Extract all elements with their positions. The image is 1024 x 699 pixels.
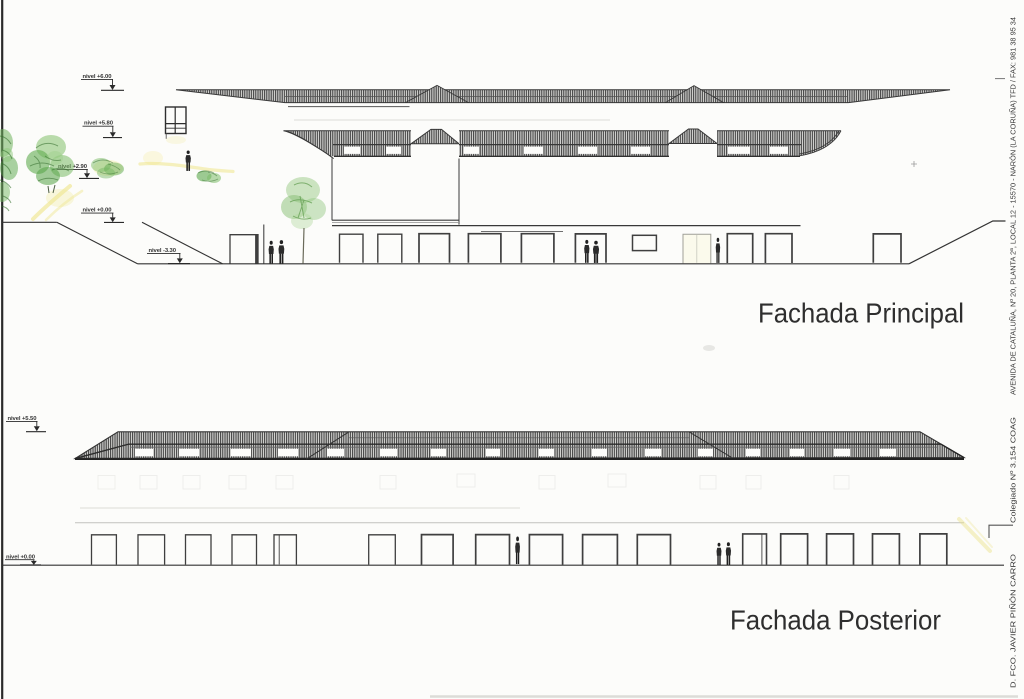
svg-text:D. FCO. JAVIER PIÑÓN CARRO: D. FCO. JAVIER PIÑÓN CARRO bbox=[1009, 554, 1018, 688]
svg-text:nivel +6.00: nivel +6.00 bbox=[83, 74, 113, 80]
svg-text:AVENIDA DE CATALUÑA, Nº 20, PL: AVENIDA DE CATALUÑA, Nº 20, PLANTA 2ª, L… bbox=[1009, 17, 1018, 395]
svg-text:nivel +5.80: nivel +5.80 bbox=[84, 121, 114, 127]
svg-text:Colegiado Nº 3.154 COAG: Colegiado Nº 3.154 COAG bbox=[1009, 417, 1018, 523]
svg-text:Fachada Principal: Fachada Principal bbox=[758, 298, 964, 329]
svg-text:Fachada Posterior: Fachada Posterior bbox=[730, 605, 941, 636]
